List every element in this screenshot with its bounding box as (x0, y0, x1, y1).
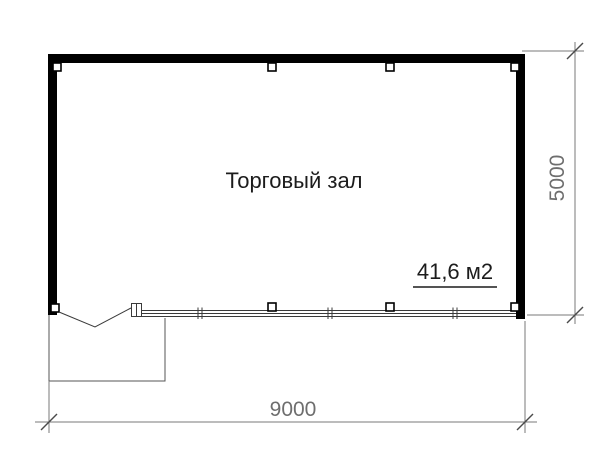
height-dimension-label: 5000 (546, 155, 569, 202)
height-dimension: 5000 (522, 42, 584, 324)
column-marker-top-1 (53, 63, 61, 71)
storefront-window (132, 304, 517, 320)
area-label: 41,6 м2 (417, 259, 493, 284)
porch-outline (49, 315, 165, 381)
column-marker-top-2 (268, 63, 276, 71)
column-marker-bottom-3 (511, 303, 519, 311)
column-marker-top-4 (511, 63, 519, 71)
width-dimension-label: 9000 (270, 398, 317, 421)
wall-right (516, 54, 525, 319)
column-marker-bottom-2 (386, 303, 394, 311)
door-jamb-marker (51, 304, 59, 312)
wall-left (48, 54, 57, 315)
width-dimension: 9000 (35, 321, 537, 433)
wall-top (48, 54, 525, 63)
window-end-jamb (132, 304, 142, 317)
floor-plan: 9000 5000 Торговый зал 41,6 м2 (0, 0, 600, 458)
entrance-door-swing (59, 308, 131, 327)
column-marker-bottom-1 (268, 303, 276, 311)
column-marker-top-3 (386, 63, 394, 71)
room-label: Торговый зал (225, 168, 362, 193)
